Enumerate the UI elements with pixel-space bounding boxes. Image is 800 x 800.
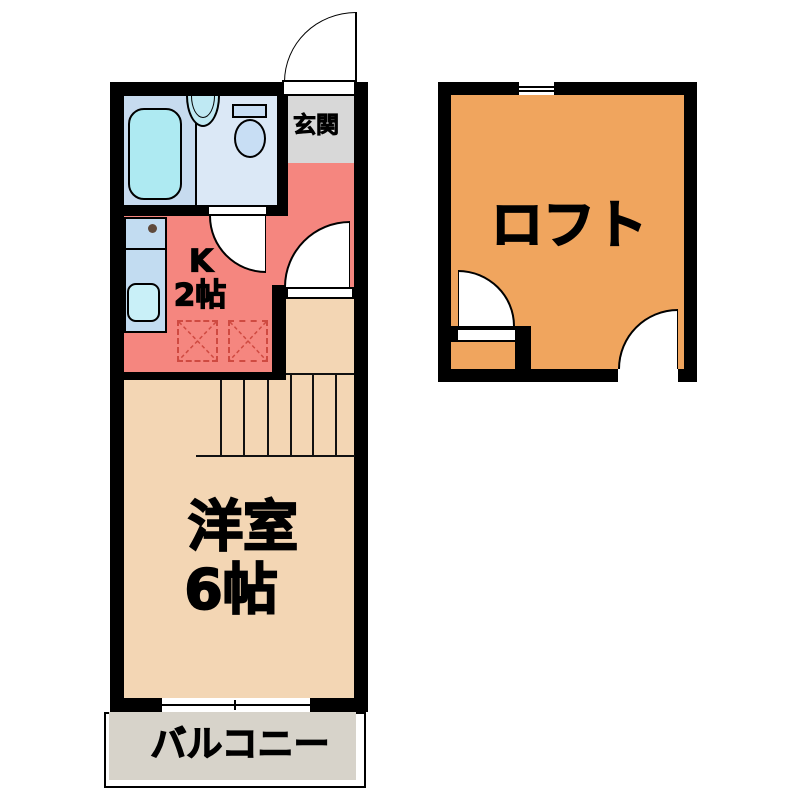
entrance-door-swing-arc bbox=[284, 12, 356, 82]
wall-kitchen-south bbox=[110, 372, 286, 380]
wall-genkan-partition bbox=[277, 96, 288, 216]
bathroom-door-leaf bbox=[207, 205, 268, 216]
entrance-door-open-line bbox=[355, 12, 357, 82]
dashed-x-icon bbox=[179, 322, 216, 360]
stair-step-line bbox=[267, 380, 269, 456]
balcony-window-tick bbox=[234, 700, 236, 710]
dashed-x-icon bbox=[230, 322, 266, 360]
stair-step-line bbox=[220, 380, 222, 456]
stair-room-door-leaf bbox=[286, 287, 354, 299]
toilet-bowl bbox=[234, 119, 266, 158]
western-room-size-label: 6帖 bbox=[184, 563, 277, 618]
loft-window-line bbox=[519, 86, 554, 88]
loft-wall-inner bbox=[515, 326, 531, 382]
kitchen-sink bbox=[127, 283, 160, 322]
kitchen-type-label: K bbox=[189, 247, 213, 278]
loft-window bbox=[519, 82, 554, 95]
stair-landing-floor bbox=[286, 299, 354, 380]
burner-dot-icon bbox=[148, 224, 157, 233]
wall-kitchen-east bbox=[272, 285, 286, 380]
loft-door-right-leaf bbox=[618, 369, 678, 382]
loft-window-line bbox=[519, 90, 554, 92]
balcony-window-center-line bbox=[162, 704, 310, 706]
loft-door-left-leaf bbox=[458, 326, 515, 342]
floorplan-canvas: 玄関 K 2帖 洋室 6帖 バルコニー ロフト bbox=[0, 0, 800, 800]
entrance-door-leaf bbox=[282, 80, 356, 96]
loft-label: ロフト bbox=[491, 200, 647, 252]
appliance-space-box bbox=[177, 320, 218, 362]
toilet-tank bbox=[232, 104, 267, 118]
kitchen-size-label: 2帖 bbox=[174, 281, 227, 312]
balcony-label: バルコニー bbox=[150, 727, 329, 763]
stair-landing-edge-line bbox=[286, 373, 354, 375]
genkan-label: 玄関 bbox=[293, 115, 339, 138]
appliance-space-box bbox=[228, 320, 268, 362]
western-room-name-label: 洋室 bbox=[188, 500, 298, 555]
stair-step-line bbox=[290, 374, 292, 456]
loft-wall-stub-west bbox=[448, 326, 458, 342]
stair-step-line bbox=[243, 380, 245, 456]
bathtub bbox=[128, 108, 182, 200]
kitchen-counter-divider bbox=[124, 217, 167, 250]
stair-step-line bbox=[312, 374, 314, 456]
stair-step-line bbox=[335, 374, 337, 456]
stair-bottom-edge-line bbox=[196, 455, 355, 457]
